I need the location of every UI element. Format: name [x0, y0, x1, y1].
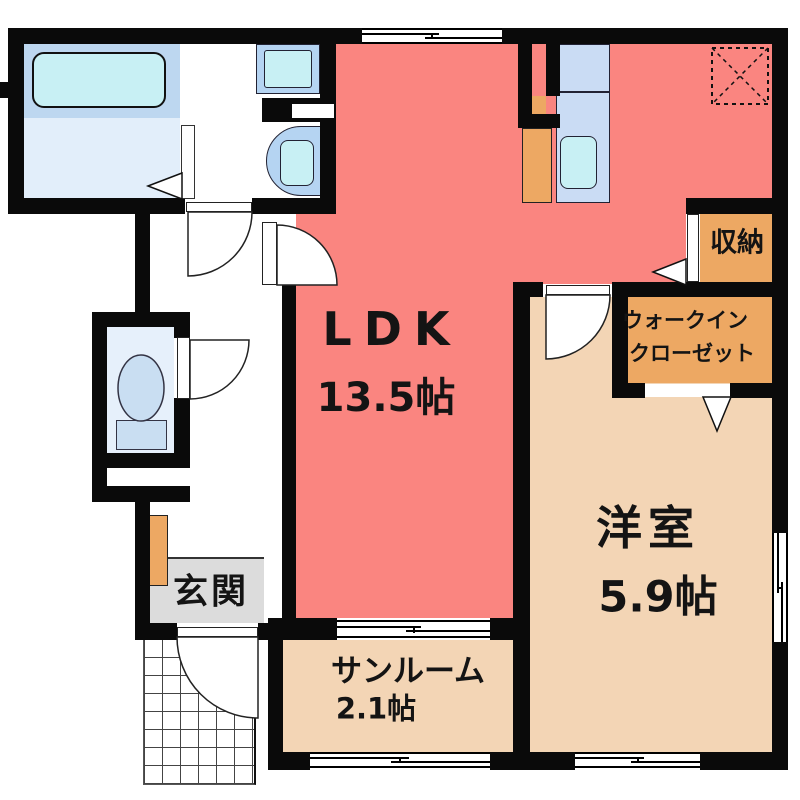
wall [612, 282, 788, 297]
washroom-door-leaf [186, 202, 252, 212]
wall [513, 284, 530, 752]
kitchen-sink [560, 136, 597, 189]
wall [135, 623, 177, 640]
entrance-door-leaf [177, 627, 258, 637]
bathtub [32, 52, 166, 108]
ldk-floor-east [513, 198, 686, 284]
walk-in-closet-opening [645, 384, 730, 397]
wall [135, 210, 150, 316]
western-room-door-leaf [546, 285, 610, 295]
ldk-door-leaf [262, 222, 277, 285]
washbasin-bowl [280, 140, 314, 186]
entrance-porch-hatch [143, 637, 256, 785]
wall [612, 383, 645, 398]
wall [8, 198, 185, 214]
window [362, 28, 502, 44]
walk-in-closet-label-line2: クローゼット [629, 344, 755, 365]
wall [320, 44, 336, 214]
washroom-shelf [292, 104, 334, 118]
window [772, 533, 788, 642]
wall [282, 285, 296, 623]
ldk-label: LDK [322, 306, 461, 352]
storage-label: 収納 [710, 230, 764, 257]
sunroom-label: サンルーム [331, 657, 485, 688]
wall [513, 282, 543, 297]
wall [546, 44, 560, 96]
wall [268, 618, 337, 640]
wall [174, 398, 190, 453]
sunroom-size-label: 2.1帖 [336, 695, 416, 724]
refrigerator-space-small [532, 96, 546, 114]
bathroom-door-opening [181, 125, 195, 199]
wall [772, 642, 788, 752]
wall [268, 630, 283, 752]
wall [268, 752, 310, 770]
window [310, 752, 490, 768]
window [575, 752, 700, 768]
wall [8, 44, 24, 214]
western-room-size-label: 5.9帖 [598, 577, 717, 620]
shoe-cabinet [148, 515, 168, 586]
wall [92, 453, 190, 468]
floor-plan: LDK 13.5帖 洋室 5.9帖 サンルーム 2.1帖 玄関 収納 ウォークイ… [0, 0, 800, 800]
western-room-label: 洋室 [596, 505, 700, 551]
entrance-label: 玄関 [173, 576, 249, 611]
wall [92, 327, 107, 502]
wall [700, 752, 788, 770]
wall [135, 502, 150, 628]
wall [92, 312, 190, 327]
wall [490, 752, 575, 770]
bathroom-washing-area-floor [24, 118, 180, 198]
toilet-door-leaf [177, 337, 190, 399]
washing-machine-pan-inner [264, 50, 312, 88]
window [337, 620, 490, 638]
refrigerator-space [522, 128, 552, 203]
wall [730, 383, 788, 398]
toilet-tank [116, 420, 167, 450]
wall [8, 28, 362, 44]
walk-in-closet-label-line1: ウォークイン [622, 311, 748, 332]
ldk-size-label: 13.5帖 [317, 378, 456, 418]
wall [92, 486, 190, 502]
wall [518, 114, 560, 128]
kitchen-counter-divider [556, 91, 610, 93]
storage-door-leaf [687, 214, 699, 282]
wall-pillar [0, 82, 8, 98]
wall [686, 198, 788, 214]
wall [502, 28, 788, 44]
